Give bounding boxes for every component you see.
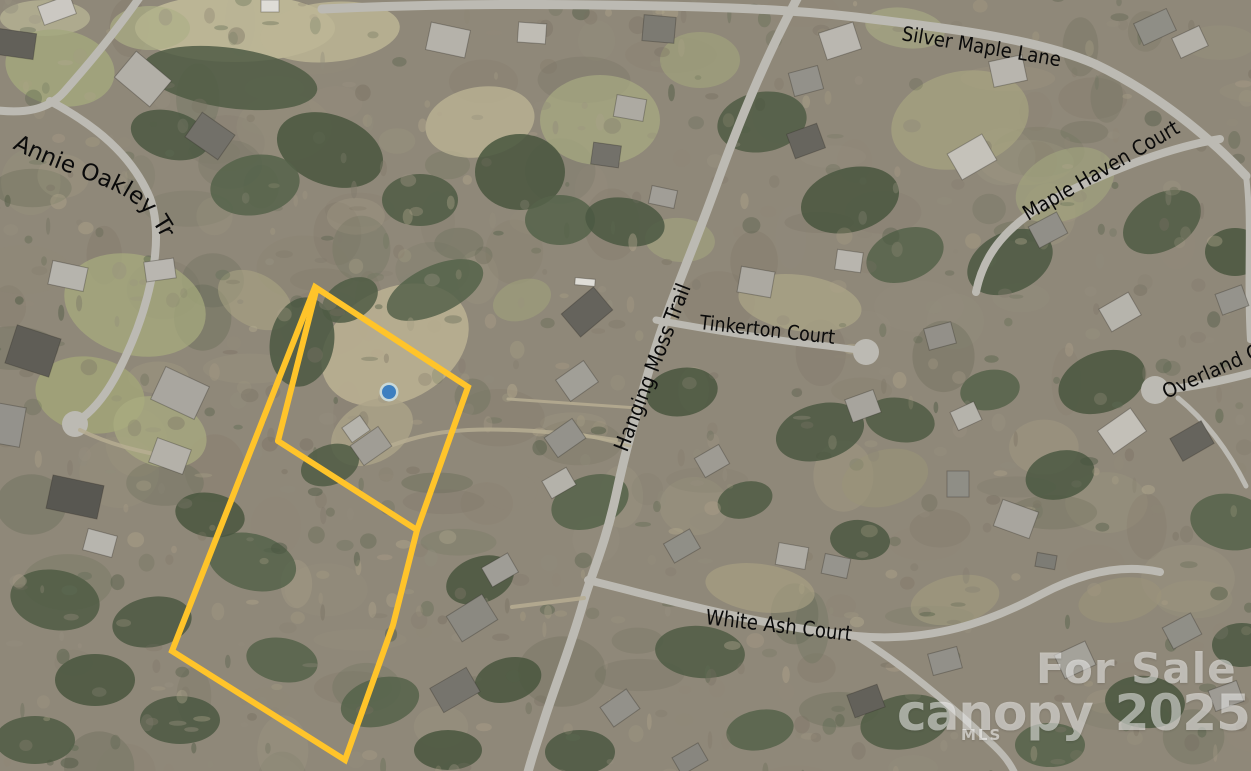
aerial-map-photo: Silver Maple LaneAnnie Oakley TrailMaple…	[0, 0, 1251, 771]
swimming-pool	[382, 385, 396, 399]
watermark-year: 2025	[1115, 684, 1250, 742]
watermark-mls-label: MLS	[961, 726, 1002, 744]
watermark-brand: canopy2025 MLS	[897, 684, 1250, 742]
